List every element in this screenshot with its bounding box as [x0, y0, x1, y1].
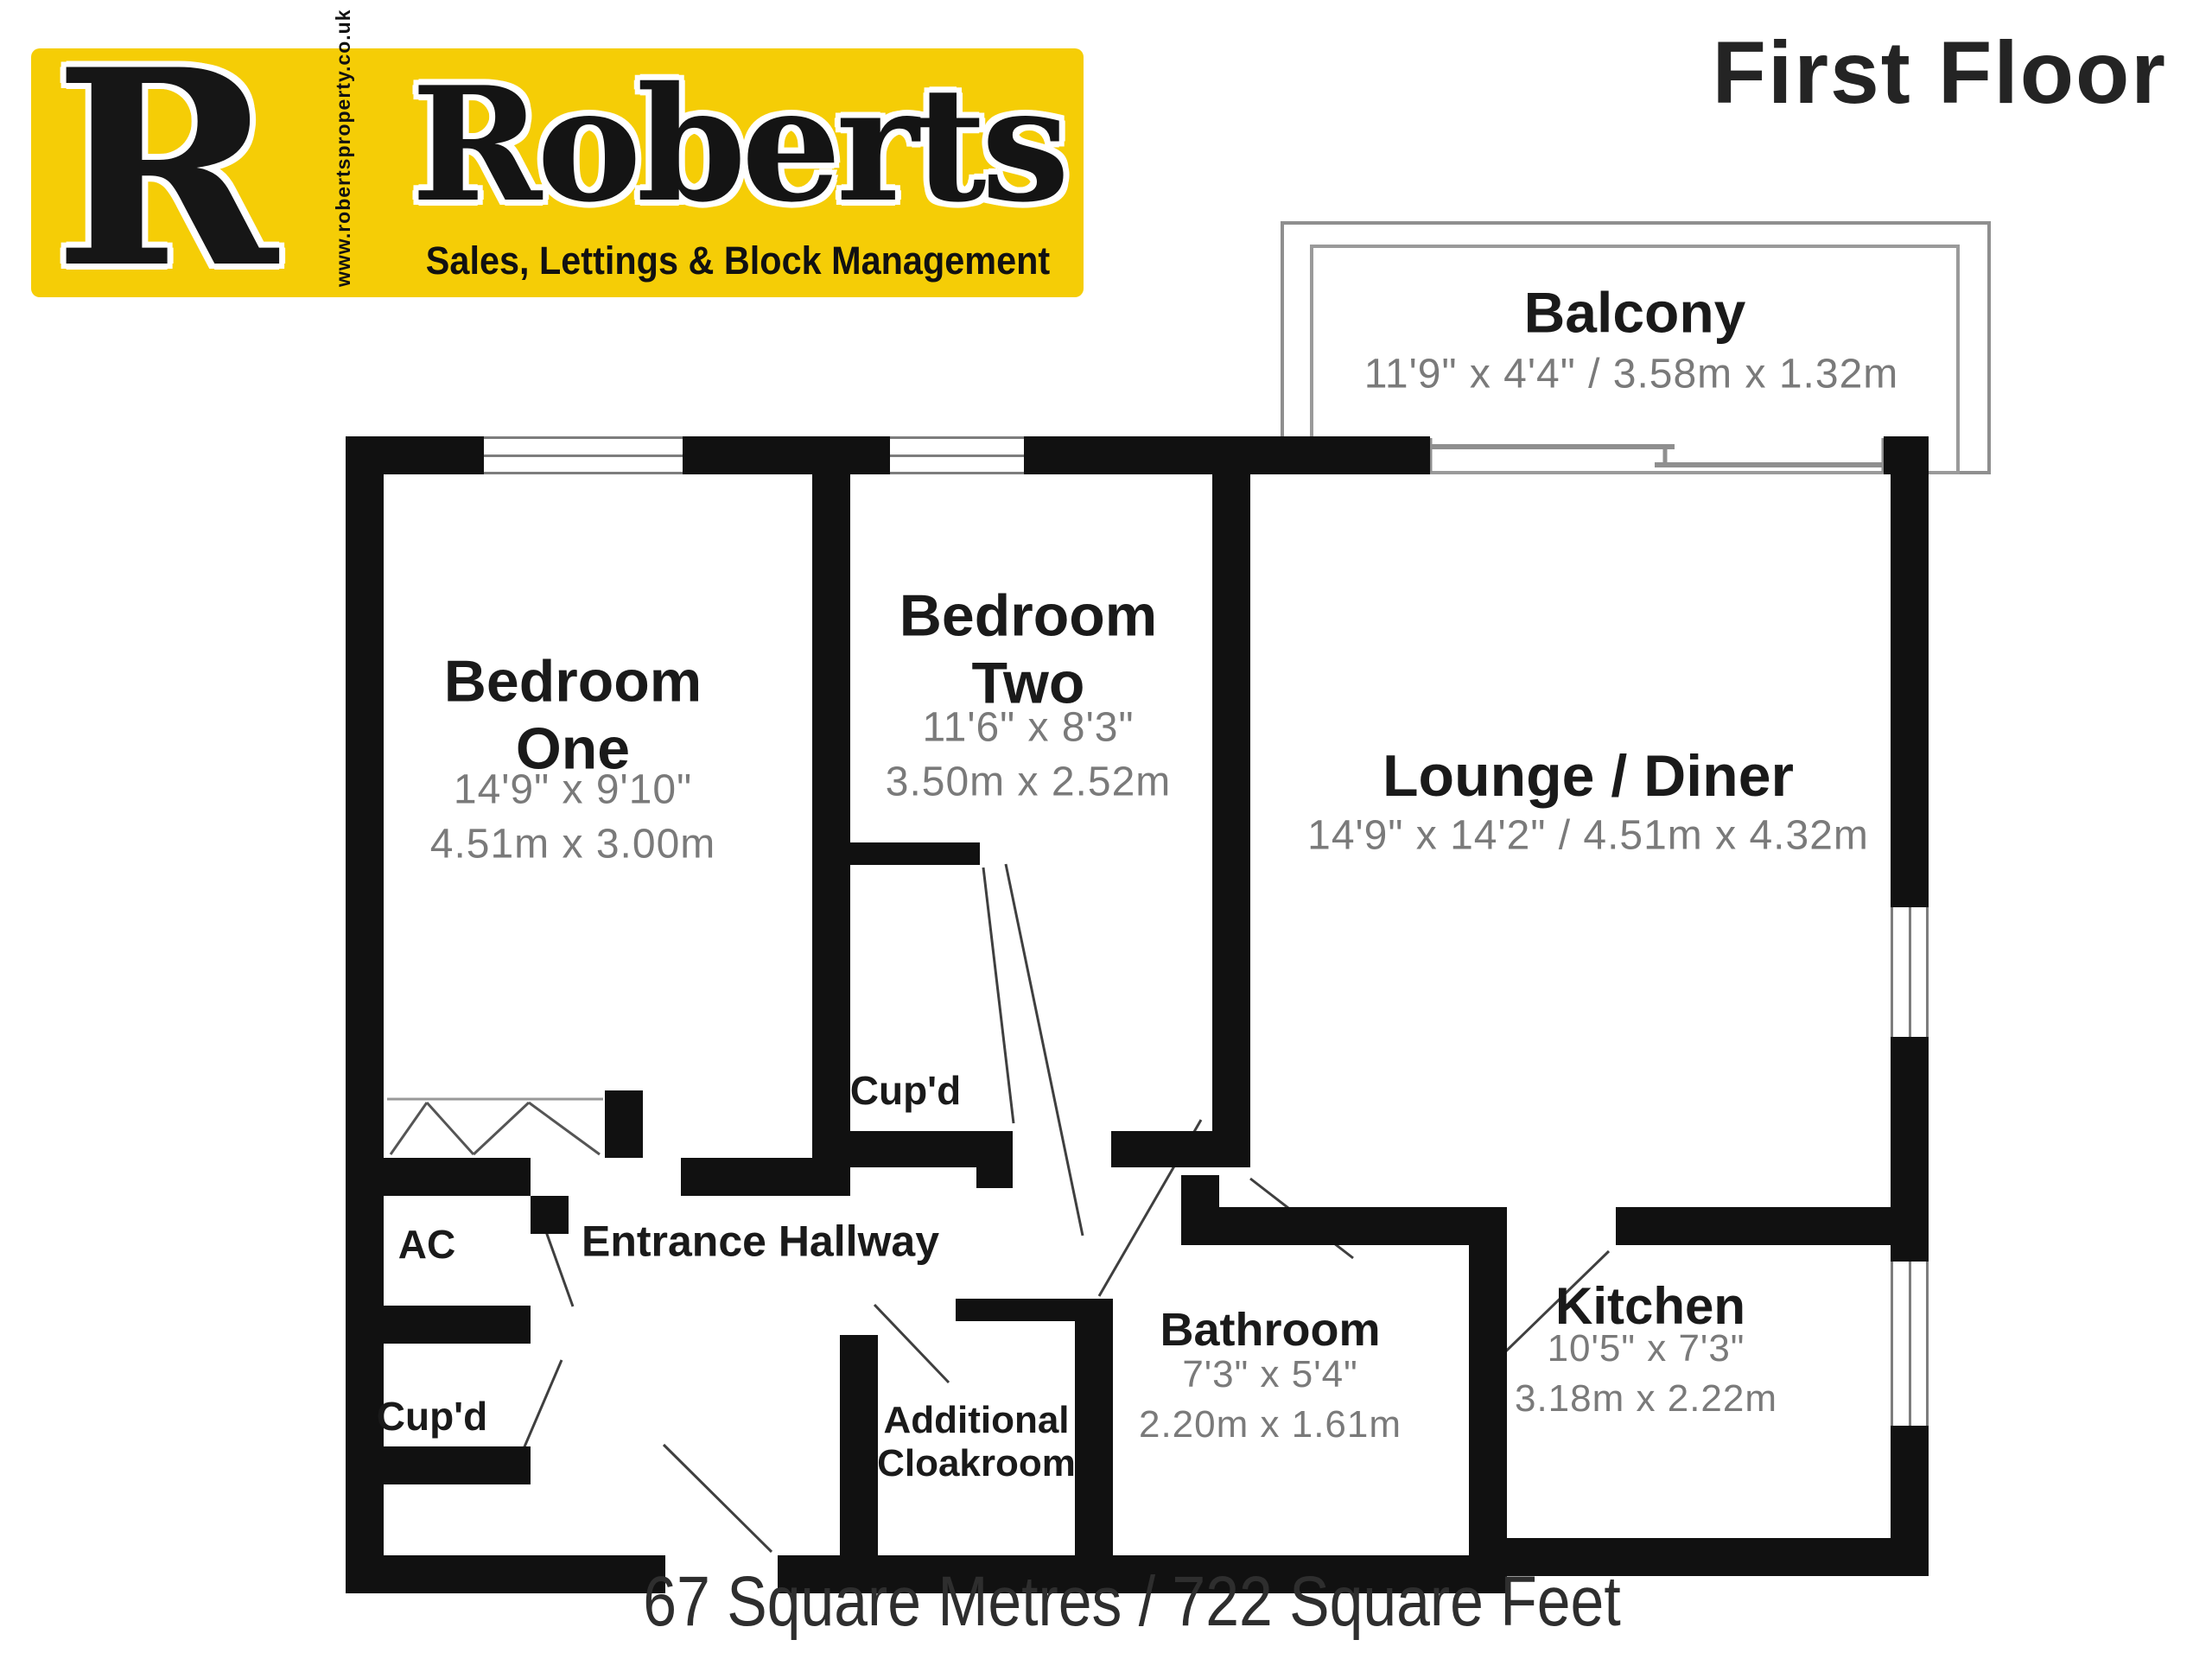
window-bedroom-one — [484, 436, 683, 474]
room-dims-bathroom: 7'3" x 5'4" 2.20m x 1.61m — [1139, 1350, 1402, 1450]
wall-cloakroom-north — [956, 1299, 1113, 1321]
room-label-lounge-diner: Lounge / Diner — [1382, 743, 1794, 810]
room-label-ac: AC — [398, 1222, 455, 1267]
room-dims-kitchen: 10'5" x 7'3" 3.18m x 2.22m — [1515, 1324, 1777, 1424]
wardrobe-door-line — [529, 1103, 600, 1154]
door-swing-cloakroom — [874, 1305, 949, 1382]
wall — [1024, 436, 1430, 474]
wall-hall-spine — [346, 1158, 531, 1196]
wardrobe-door-line — [474, 1103, 529, 1154]
wall-cloakroom-west — [840, 1335, 878, 1593]
floorplan-page: R www.robertsproperty.co.uk Roberts Sale… — [0, 0, 2212, 1659]
wall-hall-spine — [681, 1158, 850, 1196]
room-label-cupboard-hall: Cup'd — [377, 1394, 487, 1439]
window-pane-line — [1909, 1262, 1911, 1426]
room-label-bedroom-two: Bedroom Two — [899, 582, 1157, 716]
door-post — [976, 1131, 1013, 1188]
window-pane-line — [890, 454, 1024, 457]
door-swing-cupboard-hall — [520, 1360, 562, 1457]
door-swing-cupboard-bedroom-two — [983, 868, 1014, 1123]
door-swing-entrance — [664, 1445, 772, 1552]
window-kitchen — [1891, 1262, 1929, 1426]
wardrobe-divider — [605, 1090, 643, 1158]
wardrobe-door-line — [391, 1103, 427, 1154]
window-pane-line — [484, 454, 683, 457]
wall-bedrooms-divider — [812, 474, 850, 1158]
wall — [683, 436, 890, 474]
room-label-additional-cloakroom: Additional Cloakroom — [877, 1399, 1076, 1485]
window-pane-line — [1909, 907, 1911, 1037]
wall-kitchen-north — [1616, 1207, 1891, 1245]
room-label-cupboard-bedroom-two: Cup'd — [850, 1068, 961, 1113]
door-post — [493, 1446, 531, 1484]
wall-bathroom-kitchen — [1469, 1207, 1507, 1593]
room-dims-balcony: 11'9" x 4'4" / 3.58m x 1.32m — [1364, 346, 1898, 401]
window-lounge — [1891, 907, 1929, 1037]
wall-bathroom-west — [1075, 1299, 1113, 1593]
wall-cupboard-hall — [346, 1446, 493, 1484]
room-dims-bedroom-two: 11'6" x 8'3" 3.50m x 2.52m — [886, 701, 1171, 810]
wardrobe-door-line — [427, 1103, 474, 1154]
door-swing-bedroom-two — [1006, 864, 1083, 1236]
door-post — [531, 1196, 569, 1234]
room-label-balcony: Balcony — [1524, 280, 1746, 345]
wall-bedroom2-south — [850, 1131, 976, 1167]
wall-bathroom-north — [1219, 1207, 1469, 1245]
door-post — [1181, 1175, 1219, 1245]
total-area-text: 67 Square Metres / 722 Square Feet — [643, 1561, 1620, 1643]
window-bedroom-two — [890, 436, 1024, 474]
wall-bedroom2-south — [1111, 1131, 1250, 1167]
room-dims-lounge-diner: 14'9" x 14'2" / 4.51m x 4.32m — [1307, 808, 1869, 862]
wall-ac-divider — [346, 1306, 531, 1344]
room-dims-bedroom-one: 14'9" x 9'10" 4.51m x 3.00m — [430, 763, 715, 873]
wall-cupboard-bedroom2 — [850, 842, 980, 865]
room-label-entrance-hallway: Entrance Hallway — [582, 1217, 939, 1267]
wall — [346, 1555, 665, 1593]
wall-bedroom2-lounge — [1212, 474, 1250, 1167]
